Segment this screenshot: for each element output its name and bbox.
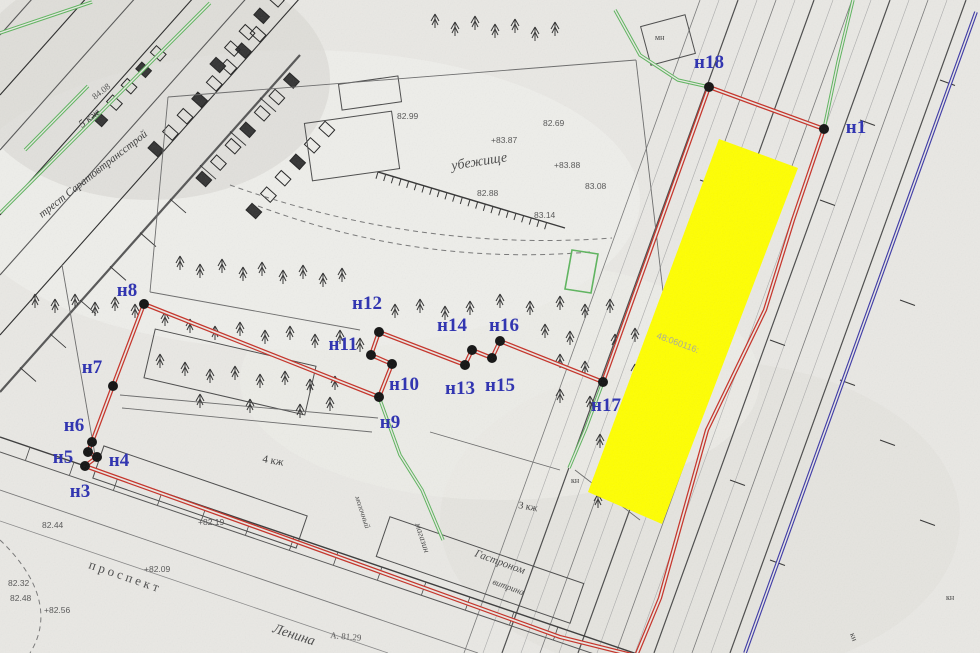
cadastral-map: 48:060116:н1н3н4н5н6н7н8н9н10н11н12н13н1… — [0, 0, 980, 653]
cadastral-map-canvas: 48:060116:н1н3н4н5н6н7н8н9н10н11н12н13н1… — [0, 0, 980, 653]
scan-grain-overlay — [0, 0, 980, 653]
